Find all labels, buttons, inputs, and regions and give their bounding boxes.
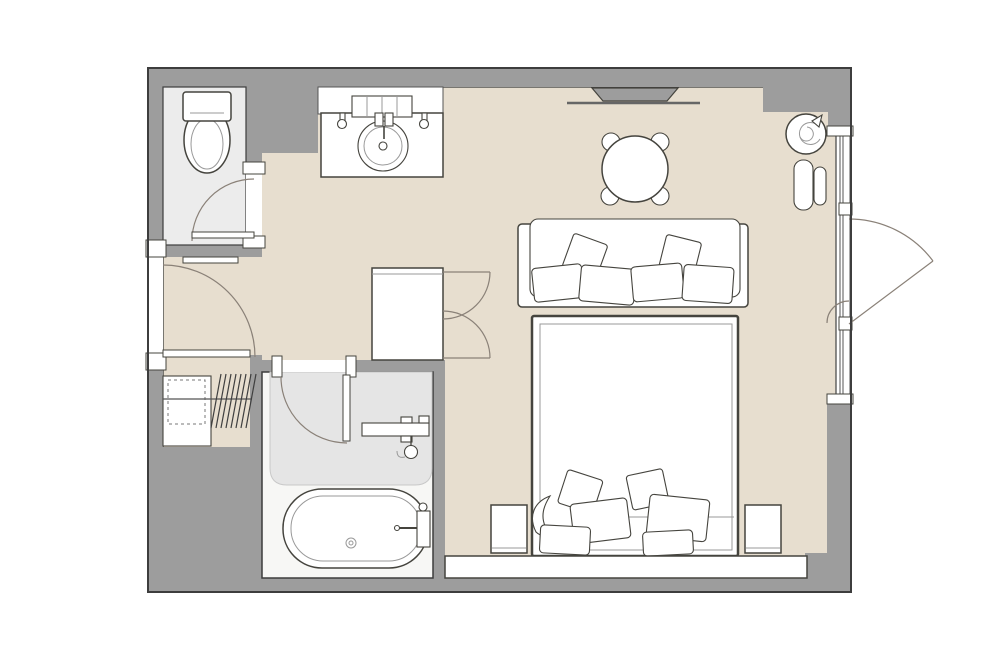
pillow (531, 263, 584, 302)
right-glazing (827, 126, 933, 404)
pillow (682, 264, 734, 303)
shower-shelf (362, 423, 429, 436)
faucet-handle (375, 113, 383, 126)
nightstand-left (491, 505, 527, 553)
pillow (631, 263, 685, 302)
toilet-door-opening (246, 174, 262, 236)
bathtub (283, 489, 430, 568)
toilet-door-leaf (192, 232, 254, 238)
plant (786, 114, 826, 154)
door-jamb (243, 162, 265, 174)
toilet-tank (183, 92, 231, 121)
window-sill (827, 126, 853, 136)
lounge-bench (794, 160, 826, 210)
pillow (642, 530, 693, 557)
balcony-door-swing (849, 219, 933, 261)
foot-console (445, 556, 807, 578)
dresser (163, 376, 211, 446)
bathroom-door-opening (281, 360, 347, 372)
door-jamb (346, 356, 356, 377)
balcony-door-leaf (849, 261, 933, 324)
entrance-opening (148, 257, 163, 353)
floor-plan-canvas (0, 0, 1000, 668)
dining-set (601, 133, 669, 205)
entrance-door-leaf (163, 350, 250, 357)
pillow (579, 265, 637, 306)
sofa (518, 219, 748, 307)
faucet-handle (385, 113, 393, 126)
window-sill (827, 394, 853, 404)
round-table (602, 136, 668, 202)
nightstand-right (745, 505, 781, 553)
door-jamb (272, 356, 282, 377)
pillow (539, 525, 590, 556)
toilet-threshold (183, 257, 238, 263)
sink-drain (379, 142, 387, 150)
floor-plan (0, 0, 1000, 668)
vanity-area (318, 87, 443, 177)
tub-faucet (417, 511, 430, 547)
double-bed (532, 316, 738, 556)
bathroom-door-leaf (343, 375, 350, 441)
